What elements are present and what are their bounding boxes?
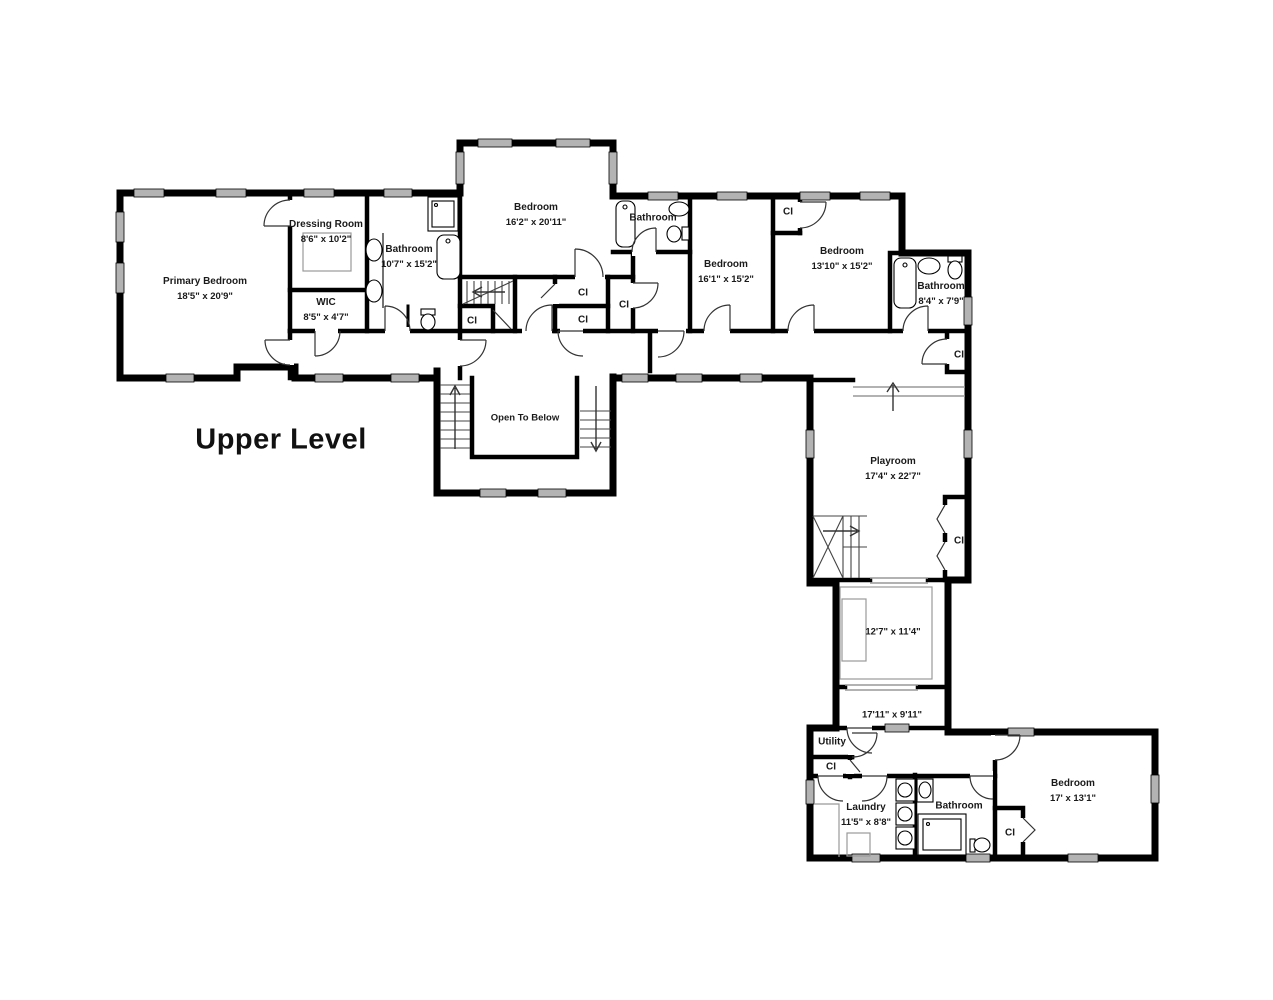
toilet-icon: [970, 838, 990, 852]
room-name: Primary Bedroom: [163, 274, 247, 289]
room-label-bedroom-right: Bedroom 13'10" x 15'2": [811, 244, 872, 274]
room-name: Bedroom: [811, 244, 872, 259]
room-dims: 18'5" x 20'9": [163, 289, 247, 304]
room-dims: 11'5" x 8'8": [841, 815, 891, 830]
dryer-icon: [896, 827, 915, 849]
room-label-bathroom-mid: Bathroom: [629, 211, 676, 226]
windows: [116, 139, 1159, 862]
shower-icon: [918, 814, 966, 855]
room-name: Bedroom: [506, 200, 567, 215]
arrow-left-icon: [473, 287, 505, 297]
closet-label: CI: [578, 288, 588, 299]
room-dims: 17' x 13'1": [1050, 791, 1096, 806]
bathtub-icon: [437, 235, 460, 279]
room-label-playroom: Playroom 17'4" x 22'7": [865, 454, 921, 484]
room-label-bathroom-bottom: Bathroom: [935, 799, 982, 814]
closet-label: CI: [1005, 828, 1015, 839]
closet-label: CI: [467, 316, 477, 327]
bathtub-icon: [894, 258, 916, 308]
floor-title: Upper Level: [195, 424, 367, 457]
room-label-dressing-room: Dressing Room 8'6" x 10'2": [289, 217, 363, 247]
room-dims: 17'11" x 9'11": [862, 708, 922, 723]
room-name: WIC: [303, 295, 348, 310]
table-outline: [847, 833, 870, 856]
laundry-sink-icon: [896, 803, 915, 825]
closet-label: CI: [619, 300, 629, 311]
room-label-bathroom-right: Bathroom 8'4" x 7'9": [917, 279, 964, 309]
room-label-laundry: Laundry 11'5" x 8'8": [841, 800, 891, 830]
washer-icon: [896, 779, 915, 801]
room-name: Laundry: [841, 800, 891, 815]
room-name: Open To Below: [491, 411, 559, 426]
room-label-room-127: 12'7" x 11'4": [865, 625, 920, 640]
room-dims: 8'4" x 7'9": [917, 294, 964, 309]
toilet-icon: [421, 309, 435, 330]
closet-label: CI: [954, 350, 964, 361]
closet-label: CI: [578, 315, 588, 326]
toilet-icon: [667, 226, 689, 242]
furniture-outlines: [303, 233, 932, 857]
floor-plan-drawing: [0, 0, 1273, 1000]
room-name: Bathroom: [935, 799, 982, 814]
headboard-outline: [842, 599, 866, 661]
shower-icon: [428, 197, 458, 231]
room-label-bedroom-top: Bedroom 16'2" x 20'11": [506, 200, 567, 230]
stairs: [440, 281, 867, 578]
sink-icon: [917, 779, 933, 802]
room-label-primary-bathroom: Bathroom 10'7" x 15'2": [381, 242, 437, 272]
room-label-primary-bedroom: Primary Bedroom 18'5" x 20'9": [163, 274, 247, 304]
room-dims: 17'4" x 22'7": [865, 469, 921, 484]
room-label-open-to-below: Open To Below: [491, 411, 559, 426]
room-dims: 10'7" x 15'2": [381, 257, 437, 272]
room-label-utility: Utility: [818, 735, 846, 750]
toilet-icon: [948, 256, 962, 279]
room-dims: 16'1" x 15'2": [698, 272, 754, 287]
counter-outline: [814, 804, 839, 857]
room-label-wic: WIC 8'5" x 4'7": [303, 295, 348, 325]
room-dims: 8'5" x 4'7": [303, 310, 348, 325]
room-label-bedroom-mid: Bedroom 16'1" x 15'2": [698, 257, 754, 287]
room-dims: 13'10" x 15'2": [811, 259, 872, 274]
arrow-right-icon: [823, 526, 859, 536]
closet-label: CI: [783, 207, 793, 218]
room-label-bedroom-bottom: Bedroom 17' x 13'1": [1050, 776, 1096, 806]
room-name: Utility: [818, 735, 846, 750]
floor-plan: Upper Level Primary Bedroom 18'5" x 20'9…: [0, 0, 1273, 1000]
room-name: Playroom: [865, 454, 921, 469]
room-dims: 16'2" x 20'11": [506, 215, 567, 230]
room-dims: 12'7" x 11'4": [865, 625, 920, 640]
room-name: Dressing Room: [289, 217, 363, 232]
closet-label: CI: [826, 762, 836, 773]
room-name: Bathroom: [917, 279, 964, 294]
room-name: Bedroom: [1050, 776, 1096, 791]
room-name: Bathroom: [381, 242, 437, 257]
arrow-down-icon: [591, 386, 601, 451]
closet-label: CI: [954, 536, 964, 547]
room-name: Bedroom: [698, 257, 754, 272]
room-name: Bathroom: [629, 211, 676, 226]
sink-icon: [918, 258, 940, 274]
room-dims: 8'6" x 10'2": [289, 232, 363, 247]
room-label-hall: 17'11" x 9'11": [862, 708, 922, 723]
